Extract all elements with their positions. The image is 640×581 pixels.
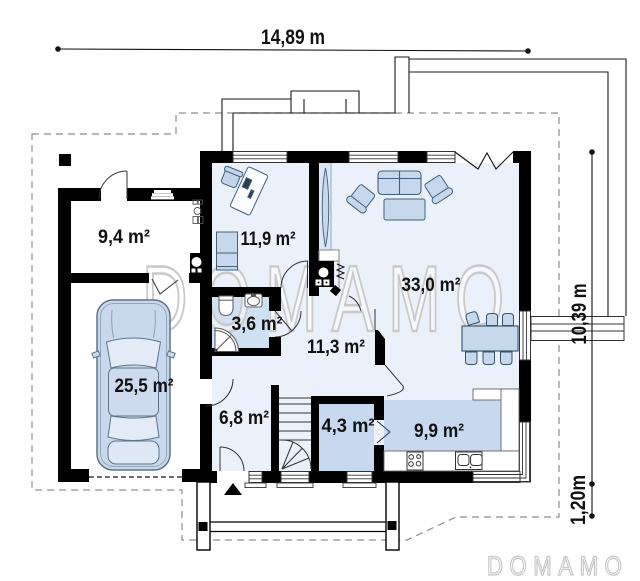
svg-text:14,89 m: 14,89 m (261, 26, 325, 49)
svg-text:6,8 m²: 6,8 m² (219, 408, 269, 429)
svg-text:9,4 m²: 9,4 m² (98, 227, 150, 248)
svg-text:3,6 m²: 3,6 m² (232, 314, 283, 335)
svg-text:4,3 m²: 4,3 m² (322, 416, 375, 437)
svg-text:9,9 m²: 9,9 m² (414, 421, 464, 442)
svg-text:11,9 m²: 11,9 m² (241, 229, 296, 250)
svg-text:1,20m: 1,20m (567, 475, 590, 525)
svg-text:25,5 m²: 25,5 m² (115, 376, 174, 397)
svg-text:11,3 m²: 11,3 m² (307, 337, 365, 358)
svg-text:DOMAMO: DOMAMO (487, 552, 628, 581)
svg-text:33,0 m²: 33,0 m² (402, 275, 461, 296)
svg-text:10,39 m: 10,39 m (568, 284, 591, 345)
